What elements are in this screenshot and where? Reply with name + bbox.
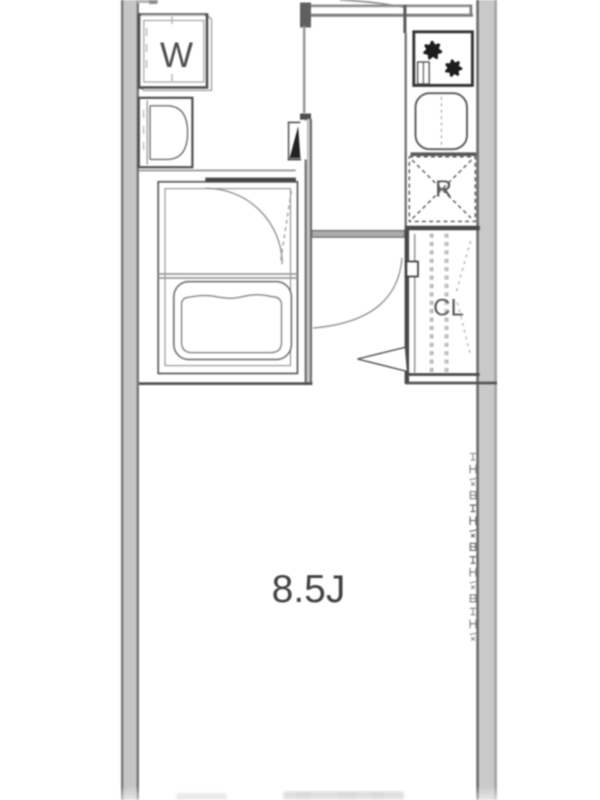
svg-text:8.5J: 8.5J <box>272 568 346 611</box>
svg-text:W: W <box>160 36 193 75</box>
svg-text:R: R <box>435 176 452 202</box>
svg-text:CL: CL <box>433 295 464 322</box>
